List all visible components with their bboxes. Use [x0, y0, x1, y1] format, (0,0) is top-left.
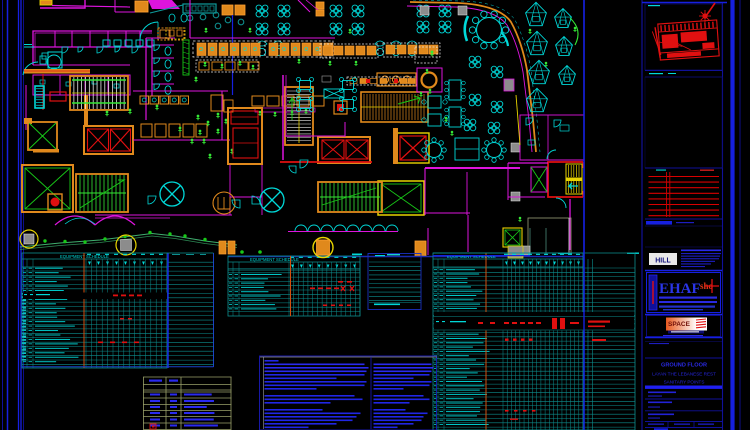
svg-text:GROUND FLOOR: GROUND FLOOR — [661, 363, 707, 369]
svg-text:EHAF: EHAF — [659, 281, 701, 297]
svg-text:SPACE: SPACE — [668, 321, 691, 328]
svg-text:SANITARY POINTS: SANITARY POINTS — [664, 380, 705, 385]
svg-text:EQUIPMENT SCHEDULE: EQUIPMENT SCHEDULE — [447, 254, 496, 259]
svg-text:LAYAN THE LEBANESE REST: LAYAN THE LEBANESE REST — [652, 372, 716, 377]
svg-text:HILL: HILL — [655, 258, 671, 265]
